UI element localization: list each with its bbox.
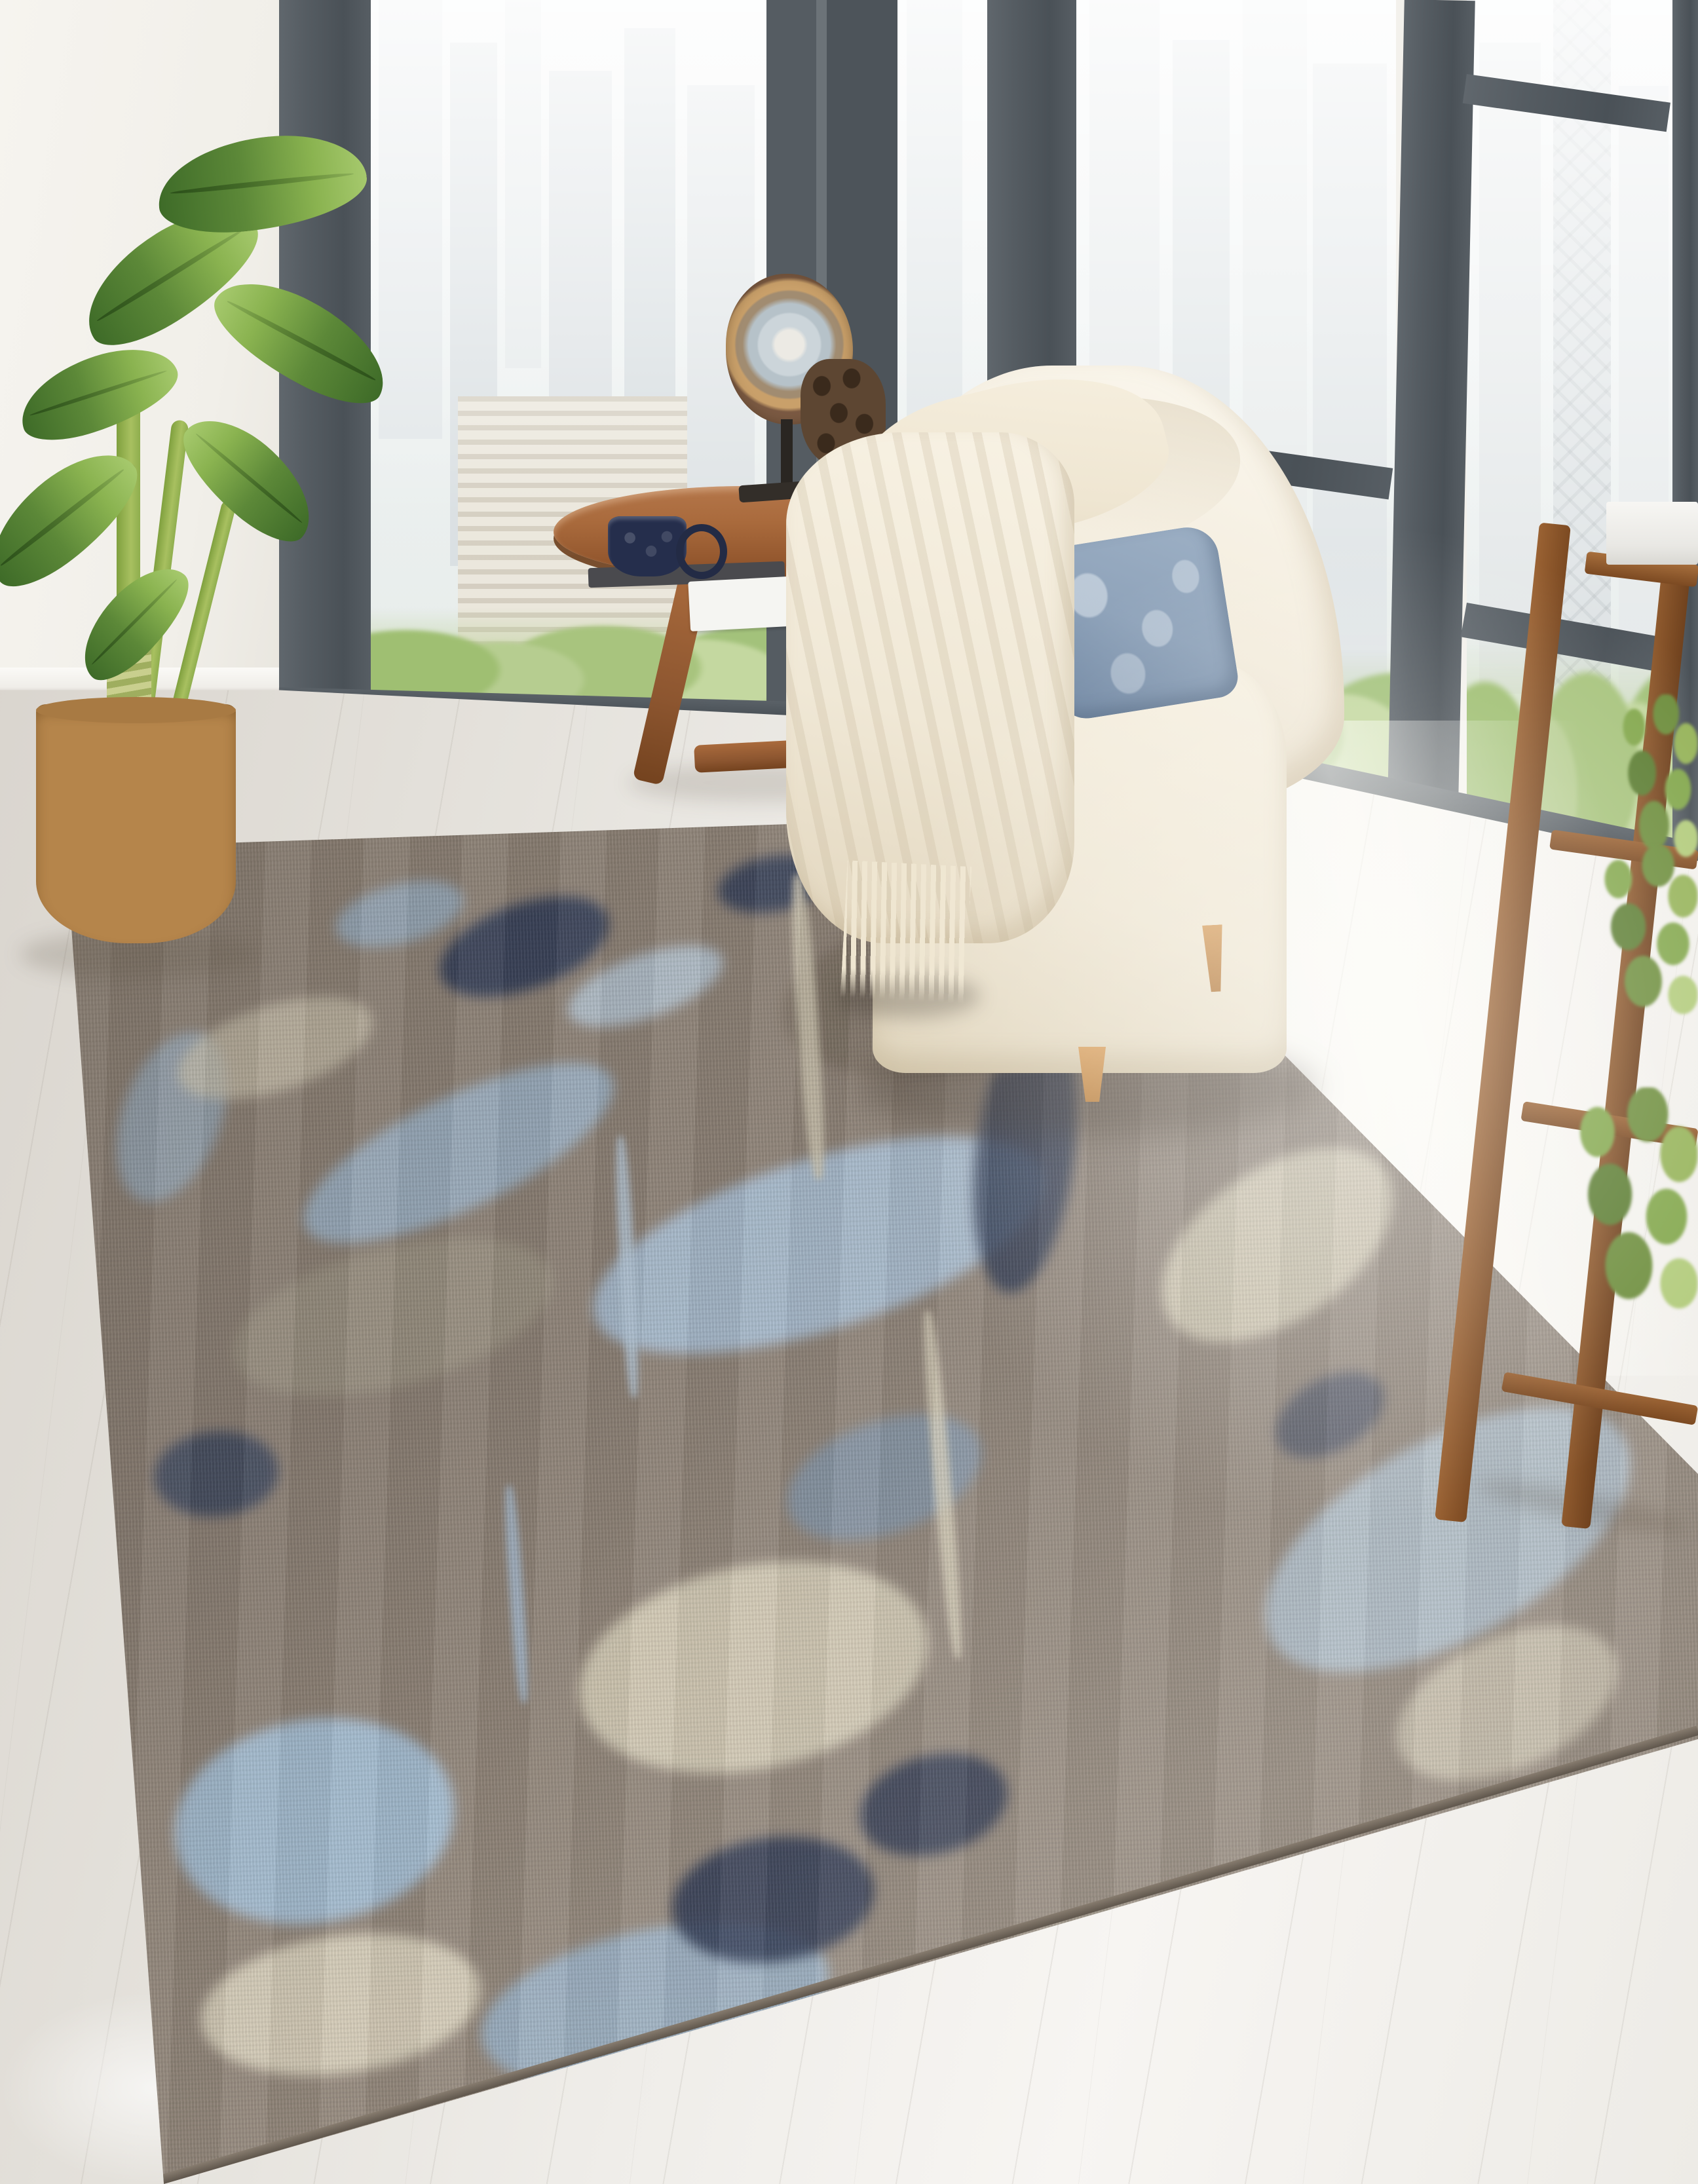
- trailing-plant: [1572, 1087, 1698, 1310]
- navy-mug: [608, 516, 687, 576]
- planter-box: [1606, 502, 1698, 565]
- trailing-plant: [1618, 694, 1698, 858]
- agate-stand-stem: [781, 419, 793, 488]
- wicker-basket: [36, 704, 236, 943]
- window-frame-column: [1387, 0, 1475, 800]
- throw-fringe: [840, 860, 972, 1004]
- basket-rim: [36, 697, 236, 723]
- mug-handle: [676, 524, 727, 579]
- trailing-plant: [1598, 845, 1698, 1015]
- living-room-scene: [0, 0, 1698, 2184]
